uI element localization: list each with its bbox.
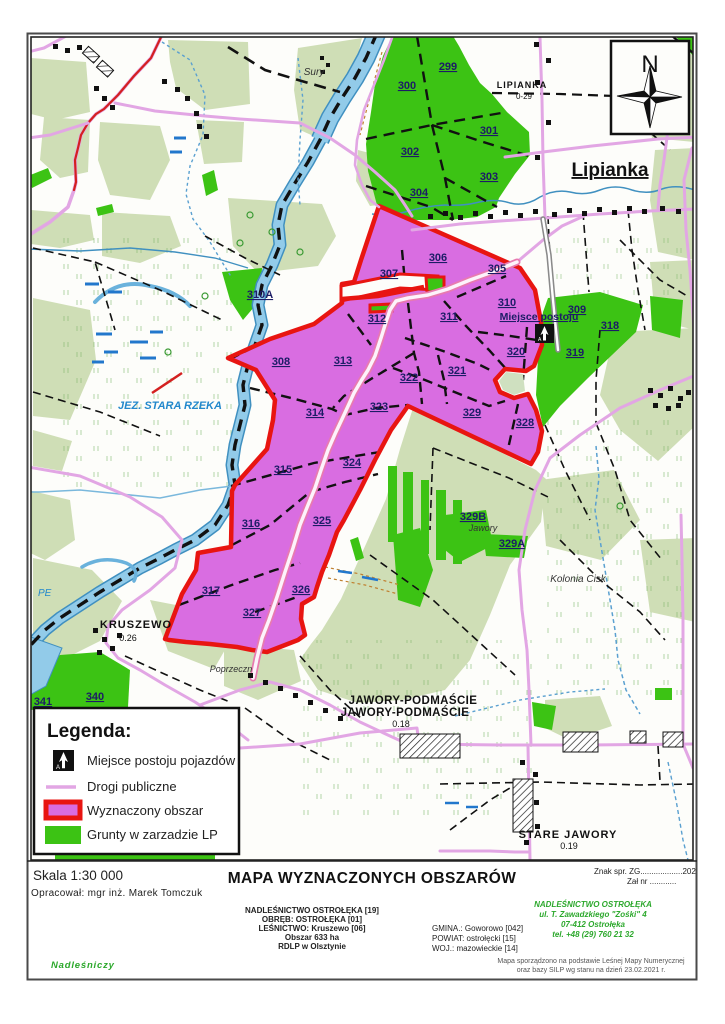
- svg-text:306: 306: [429, 252, 447, 264]
- svg-text:310A: 310A: [247, 289, 273, 301]
- svg-text:311: 311: [440, 311, 458, 323]
- svg-text:303: 303: [480, 171, 498, 183]
- svg-text:0.19: 0.19: [560, 841, 578, 851]
- svg-text:LEŚNICTWO: Kruszewo [06]: LEŚNICTWO: Kruszewo [06]: [258, 924, 365, 933]
- svg-text:329: 329: [463, 407, 481, 419]
- svg-text:Nadleśniczy: Nadleśniczy: [51, 960, 115, 971]
- svg-text:Miejsce postoju pojazdów: Miejsce postoju pojazdów: [87, 753, 236, 768]
- svg-text:0.18: 0.18: [392, 719, 410, 729]
- svg-text:340: 340: [86, 691, 104, 703]
- svg-text:Znak spr. ZG................: Znak spr. ZG...................202: [594, 867, 696, 876]
- svg-text:314: 314: [306, 407, 325, 419]
- svg-text:320: 320: [507, 346, 525, 358]
- svg-text:300: 300: [398, 80, 416, 92]
- svg-text:315: 315: [274, 464, 292, 476]
- svg-text:299: 299: [439, 61, 457, 73]
- svg-text:316: 316: [242, 518, 260, 530]
- svg-text:Opracował: mgr inż. Marek Tomc: Opracował: mgr inż. Marek Tomczuk: [31, 888, 203, 899]
- svg-text:322: 322: [400, 372, 418, 384]
- svg-text:Drogi publiczne: Drogi publiczne: [87, 779, 177, 794]
- svg-text:307: 307: [380, 268, 398, 280]
- svg-text:328: 328: [516, 417, 534, 429]
- svg-text:Jawory: Jawory: [468, 523, 498, 533]
- svg-text:MAPA WYZNACZONYCH OBSZARÓW: MAPA WYZNACZONYCH OBSZARÓW: [228, 869, 517, 887]
- svg-text:325: 325: [313, 515, 331, 527]
- svg-text:329B: 329B: [460, 511, 486, 523]
- svg-text:308: 308: [272, 356, 290, 368]
- svg-text:0.26: 0.26: [119, 633, 137, 643]
- svg-text:Lipianka: Lipianka: [571, 160, 649, 181]
- svg-text:JEZ. STARA RZEKA: JEZ. STARA RZEKA: [118, 400, 222, 412]
- svg-text:RDLP w Olsztynie: RDLP w Olsztynie: [278, 942, 346, 951]
- svg-text:310: 310: [498, 297, 516, 309]
- svg-text:301: 301: [480, 125, 498, 137]
- svg-text:341: 341: [34, 696, 52, 708]
- svg-text:329A: 329A: [499, 538, 525, 550]
- svg-text:321: 321: [448, 365, 466, 377]
- svg-text:STARE JAWORY: STARE JAWORY: [519, 829, 618, 841]
- svg-text:tel. +48 (29) 760 21 32: tel. +48 (29) 760 21 32: [552, 930, 634, 939]
- svg-text:312: 312: [368, 313, 386, 325]
- svg-text:318: 318: [601, 320, 619, 332]
- svg-text:305: 305: [488, 263, 506, 275]
- svg-text:Kolonia Cisk: Kolonia Cisk: [550, 574, 607, 585]
- svg-text:Zał nr ............: Zał nr ............: [627, 877, 676, 886]
- svg-text:Sury: Sury: [304, 67, 326, 78]
- svg-text:Obszar 633 ha: Obszar 633 ha: [285, 933, 340, 942]
- svg-text:Miejsce postoju: Miejsce postoju: [500, 311, 579, 323]
- svg-text:Grunty w zarzadzie LP: Grunty w zarzadzie LP: [87, 827, 218, 842]
- svg-text:GMINA.: Goworowo [042]: GMINA.: Goworowo [042]: [432, 924, 523, 933]
- svg-text:07-412 Ostrołęka: 07-412 Ostrołęka: [561, 920, 626, 929]
- svg-text:313: 313: [334, 355, 352, 367]
- svg-text:319: 319: [566, 347, 584, 359]
- svg-text:327: 327: [243, 607, 261, 619]
- svg-text:317: 317: [202, 585, 220, 597]
- svg-text:oraz bazy SILP wg stanu na dzi: oraz bazy SILP wg stanu na dzień 23.02.2…: [517, 967, 666, 974]
- svg-text:JAWORY-PODMAŚCIE: JAWORY-PODMAŚCIE: [349, 694, 478, 707]
- svg-text:Poprzeczn: Poprzeczn: [210, 664, 253, 674]
- svg-text:Mapa sporządzono na podstawie: Mapa sporządzono na podstawie Leśnej Map…: [497, 958, 685, 965]
- svg-text:A: A: [56, 765, 60, 771]
- svg-text:323: 323: [370, 401, 388, 413]
- svg-text:324: 324: [343, 457, 362, 469]
- svg-text:0-29: 0-29: [516, 92, 533, 101]
- svg-text:Skala 1:30 000: Skala 1:30 000: [33, 868, 123, 883]
- svg-text:JAWORY-PODMAŚCIE: JAWORY-PODMAŚCIE: [341, 706, 470, 719]
- svg-text:POWIAT: ostrołęcki [15]: POWIAT: ostrołęcki [15]: [432, 934, 516, 943]
- svg-text:326: 326: [292, 584, 310, 596]
- svg-text:PE: PE: [38, 588, 52, 599]
- svg-text:NADLEŚNICTWO OSTROŁĘKA: NADLEŚNICTWO OSTROŁĘKA: [534, 900, 652, 909]
- svg-text:Wyznaczony obszar: Wyznaczony obszar: [87, 803, 204, 818]
- svg-text:304: 304: [410, 187, 429, 199]
- svg-text:OBRĘB: OSTROŁĘKA [01]: OBRĘB: OSTROŁĘKA [01]: [262, 915, 362, 924]
- svg-text:KRUSZEWO: KRUSZEWO: [100, 619, 172, 631]
- svg-text:ul. T. Zawadzkiego "Zośki" 4: ul. T. Zawadzkiego "Zośki" 4: [539, 910, 647, 919]
- svg-text:WOJ.: mazowieckie [14]: WOJ.: mazowieckie [14]: [432, 944, 518, 953]
- svg-text:302: 302: [401, 146, 419, 158]
- svg-text:Legenda:: Legenda:: [47, 721, 131, 742]
- svg-text:NADLEŚNICTWO OSTROŁĘKA [19]: NADLEŚNICTWO OSTROŁĘKA [19]: [245, 906, 379, 915]
- svg-text:LIPIANKA: LIPIANKA: [497, 80, 548, 90]
